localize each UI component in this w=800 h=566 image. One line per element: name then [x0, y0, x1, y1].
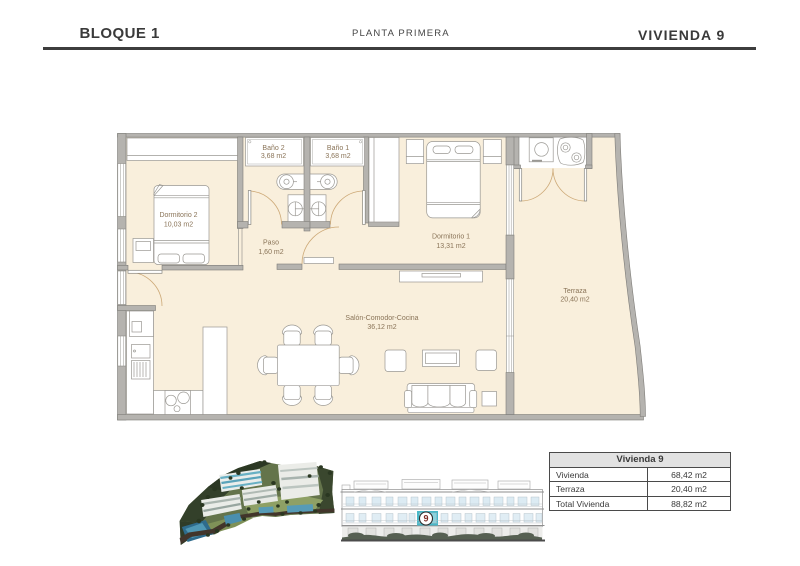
svg-text:Dormitorio 2: Dormitorio 2 — [159, 212, 197, 219]
svg-text:Paso: Paso — [263, 240, 279, 247]
svg-text:Baño 2: Baño 2 — [262, 145, 284, 152]
svg-text:3,68 m2: 3,68 m2 — [325, 153, 350, 160]
svg-text:Terraza: Terraza — [563, 288, 586, 295]
svg-text:20,40 m2: 20,40 m2 — [560, 296, 589, 303]
svg-text:10,03 m2: 10,03 m2 — [164, 222, 193, 229]
svg-text:Dormitorio 1: Dormitorio 1 — [432, 234, 470, 241]
svg-text:Salón-Comodor-Cocina: Salón-Comodor-Cocina — [345, 315, 418, 322]
svg-text:3,68 m2: 3,68 m2 — [261, 153, 286, 160]
svg-text:9: 9 — [423, 514, 428, 524]
svg-text:Baño 1: Baño 1 — [327, 145, 349, 152]
svg-text:36,12 m2: 36,12 m2 — [367, 324, 396, 331]
svg-text:13,31 m2: 13,31 m2 — [436, 243, 465, 250]
svg-text:1,60 m2: 1,60 m2 — [258, 249, 283, 256]
